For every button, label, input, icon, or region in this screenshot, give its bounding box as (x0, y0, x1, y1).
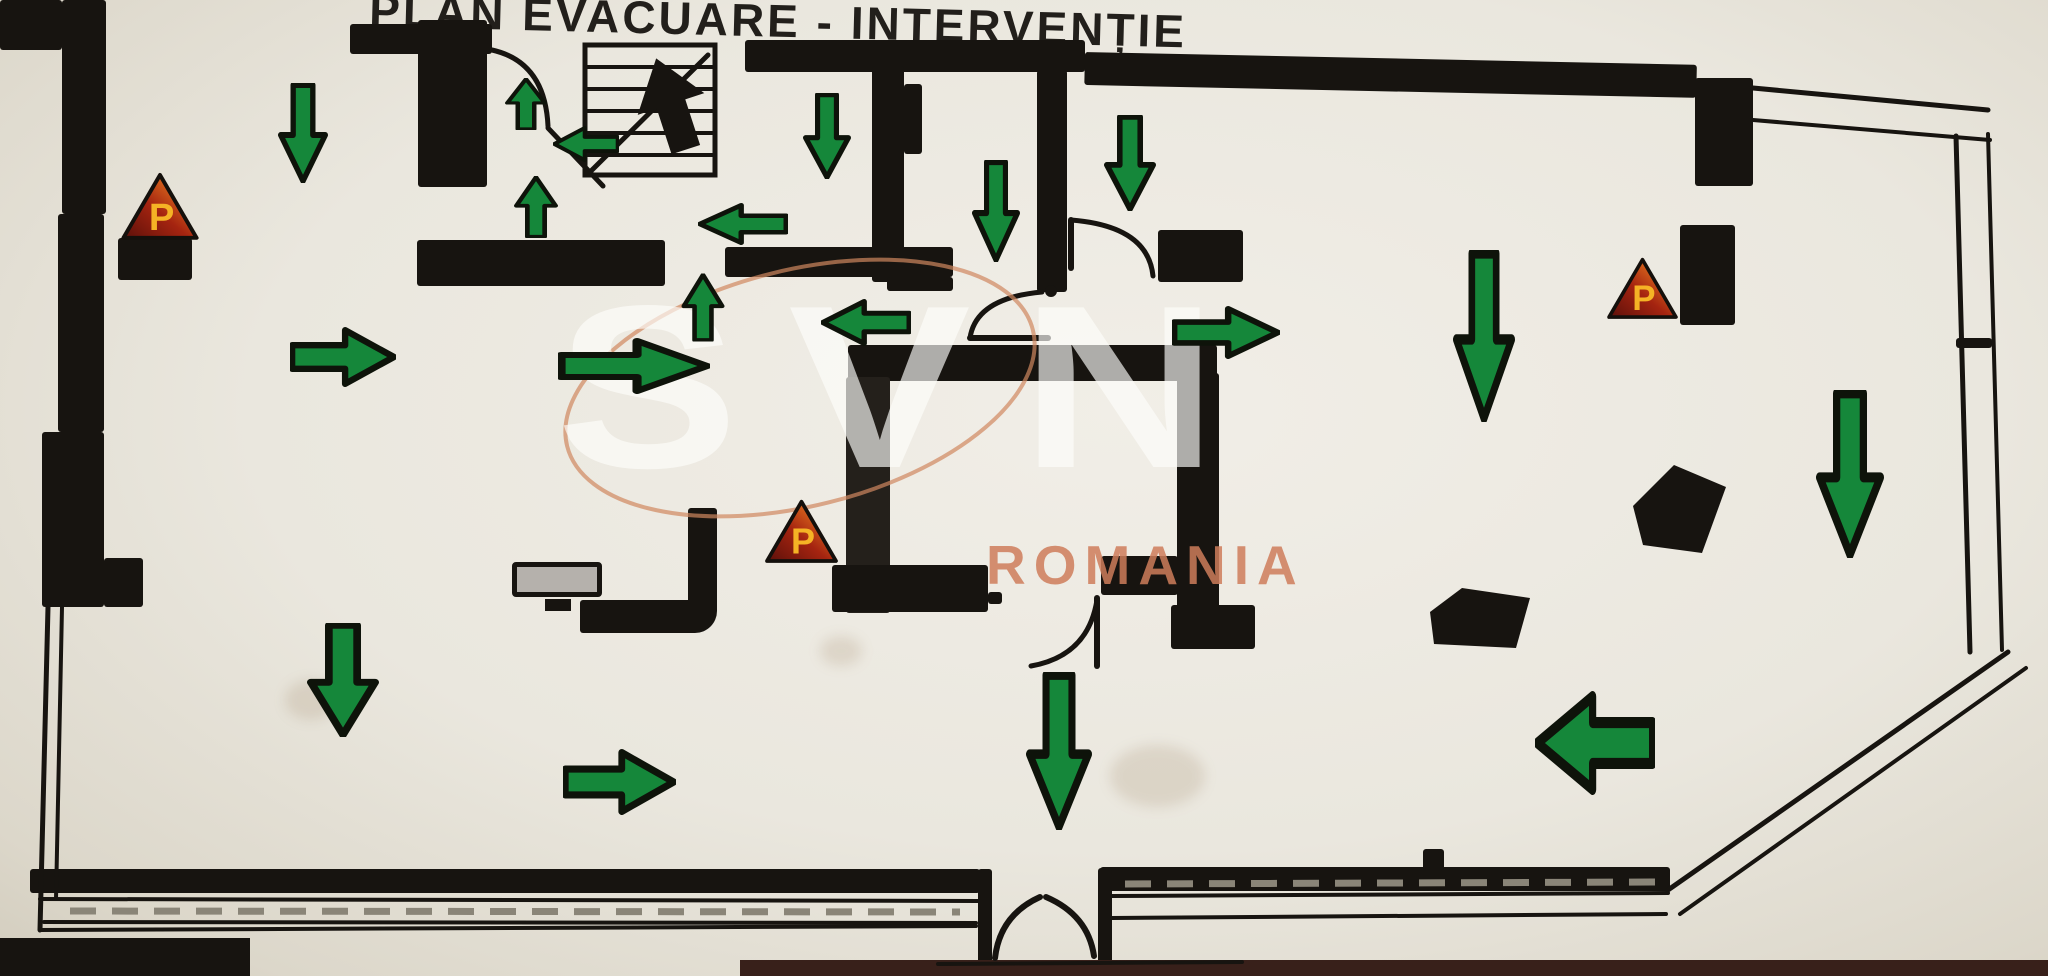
evacuation-arrow-down (1026, 672, 1092, 830)
evacuation-arrow-down (1104, 115, 1156, 211)
exit-door-leaf (1046, 897, 1094, 956)
evacuation-arrow-down (278, 83, 328, 183)
extinguisher-triangle-icon: P (763, 498, 840, 564)
evacuation-arrow-right (558, 338, 710, 394)
svg-text:P: P (149, 196, 174, 239)
evacuation-arrow-down (1453, 250, 1515, 422)
stair-up-arrow (623, 48, 719, 161)
evacuation-arrow-left (698, 203, 788, 245)
exit-door-leaf (995, 897, 1040, 958)
evacuation-arrow-down (1816, 390, 1884, 558)
evacuation-arrow-down (972, 160, 1020, 262)
evacuation-arrow-right (1172, 306, 1280, 359)
extinguisher-triangle-icon: P (1606, 256, 1679, 320)
evacuation-arrow-right (290, 327, 396, 387)
evacuation-arrow-down (803, 93, 851, 179)
evacuation-arrow-right (563, 749, 676, 815)
chamfer-window (1668, 652, 2008, 890)
evacuation-arrow-up (681, 273, 724, 341)
door-arc (1071, 220, 1153, 276)
evacuation-arrow-up (514, 176, 558, 238)
door-arc (1031, 600, 1097, 666)
evacuation-plan: PLAN EVACUARE - INTERVENȚIE (0, 0, 2048, 976)
evacuation-arrow-down (307, 623, 379, 737)
window-band (40, 607, 48, 930)
furniture-shape (1430, 588, 1530, 648)
evacuation-arrow-up (505, 78, 547, 130)
svg-text:P: P (1632, 279, 1655, 318)
svg-text:P: P (791, 521, 815, 562)
evacuation-arrow-left (553, 126, 619, 162)
right-boundary (1956, 136, 1970, 652)
furniture-shape (1633, 465, 1726, 553)
evacuation-arrow-left (1535, 691, 1655, 795)
extinguisher-triangle-icon: P (118, 171, 202, 241)
evacuation-arrow-left (821, 299, 911, 346)
